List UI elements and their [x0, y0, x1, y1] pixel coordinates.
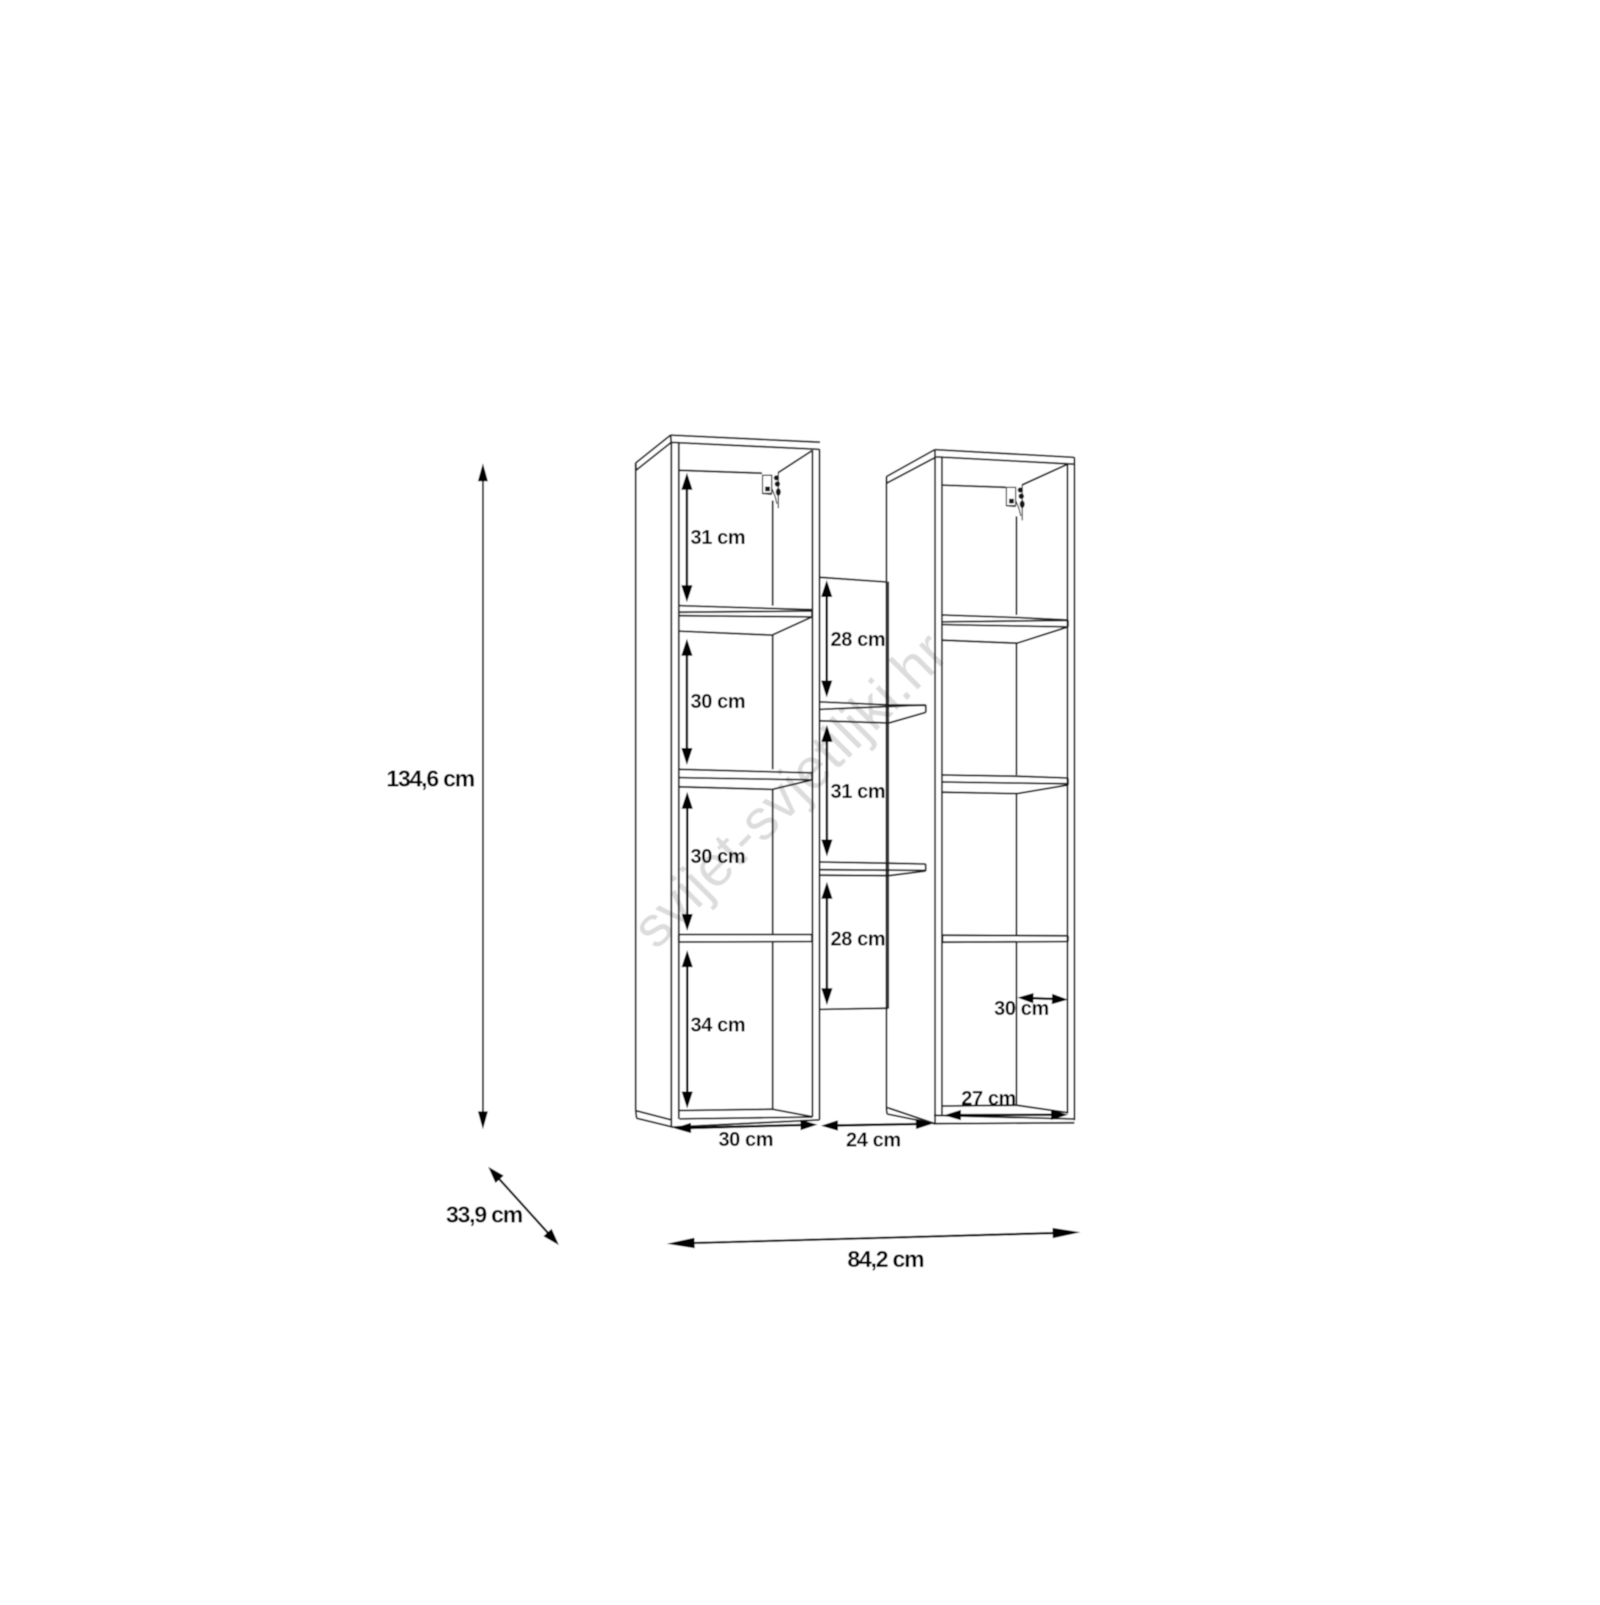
svg-text:33,9 cm: 33,9 cm [446, 1202, 523, 1228]
svg-text:34 cm: 34 cm [691, 1015, 746, 1037]
svg-text:30 cm: 30 cm [718, 1129, 773, 1151]
svg-text:31 cm: 31 cm [691, 527, 746, 549]
svg-text:134,6 cm: 134,6 cm [386, 766, 474, 792]
svg-text:24 cm: 24 cm [846, 1130, 901, 1152]
svg-text:27 cm: 27 cm [961, 1088, 1016, 1110]
svg-text:30 cm: 30 cm [691, 691, 746, 713]
svg-text:30 cm: 30 cm [691, 846, 746, 868]
svg-text:30 cm: 30 cm [994, 998, 1049, 1020]
svg-text:28 cm: 28 cm [831, 629, 886, 651]
svg-text:31 cm: 31 cm [831, 781, 886, 803]
svg-text:84,2 cm: 84,2 cm [847, 1246, 924, 1272]
svg-text:28 cm: 28 cm [831, 929, 886, 951]
